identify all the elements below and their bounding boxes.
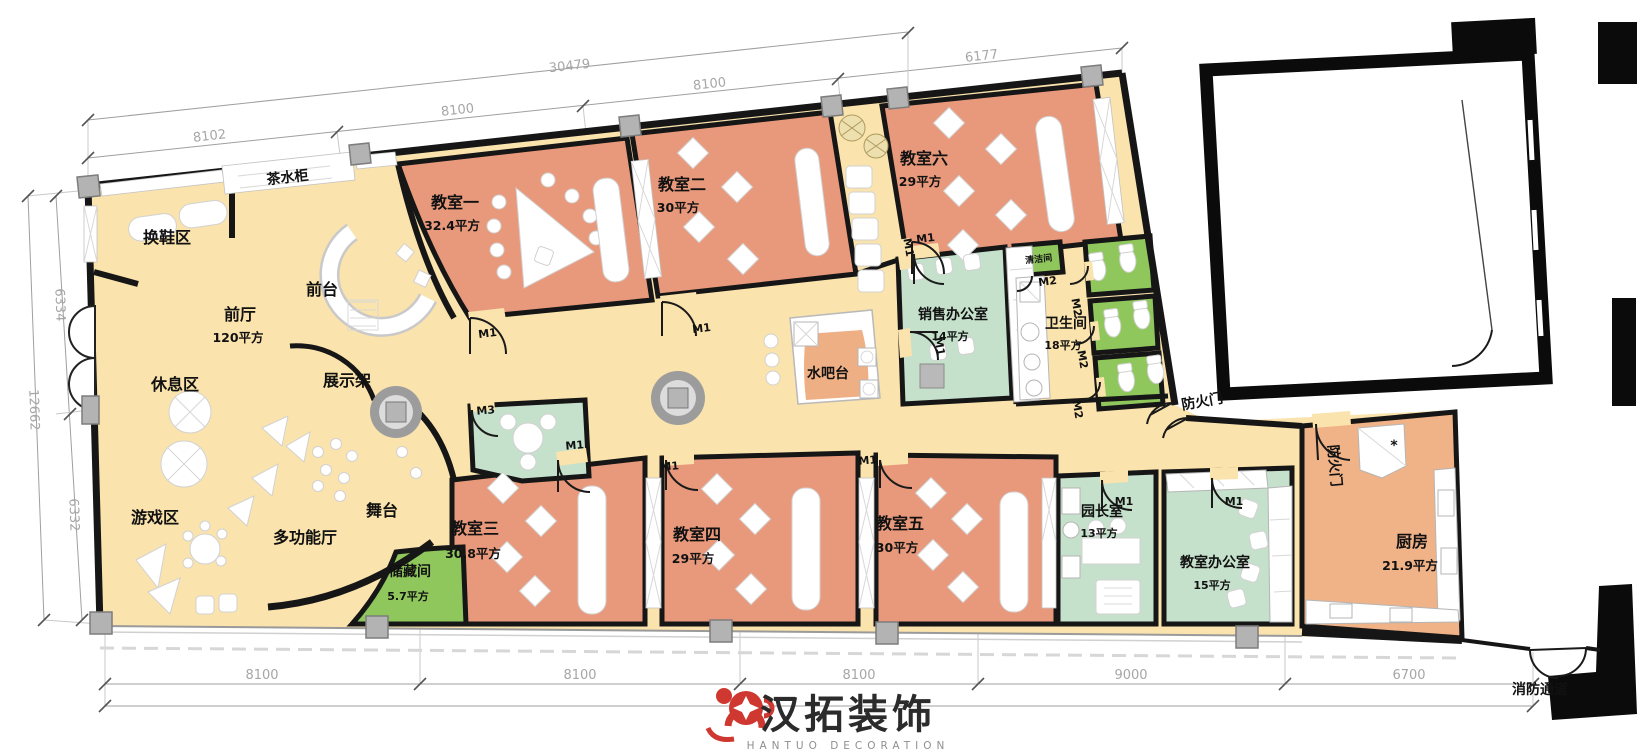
label-fire-door-1: 防火门 xyxy=(1180,390,1224,414)
label-teachers-office-area: 15平方 xyxy=(1193,578,1230,592)
label-display-shelf: 展示架 xyxy=(323,371,371,390)
label-stage: 舞台 xyxy=(366,501,398,520)
door-tag-m1: M1 xyxy=(565,438,585,453)
label-storage-area: 5.7平方 xyxy=(387,589,429,603)
logo-cn-text: 汉拓装饰 xyxy=(760,692,936,738)
label-kitchen: 厨房 xyxy=(1396,532,1428,551)
door-tag-m1: M1 xyxy=(1225,495,1244,508)
label-lounge: 休息区 xyxy=(150,375,199,394)
label-multifunction-hall: 多功能厅 xyxy=(273,528,337,547)
label-classroom-1-area: 32.4平方 xyxy=(424,218,480,233)
dim-bottom-5: 6700 xyxy=(1392,668,1425,683)
dim-bottom-2: 8100 xyxy=(563,668,596,683)
label-classroom-6: 教室六 xyxy=(900,149,948,168)
label-kitchen-area: 21.9平方 xyxy=(1382,558,1438,573)
label-shoe-area: 换鞋区 xyxy=(143,228,191,247)
neighbor-wall-fragment-bottomright xyxy=(1548,584,1637,720)
label-bathroom-area: 18平方 xyxy=(1044,338,1081,352)
dim-top-1: 8102 xyxy=(192,127,227,146)
label-classroom-4: 教室四 xyxy=(673,525,721,544)
dim-top-overall: 30479 xyxy=(548,57,591,76)
dim-left-2: 6332 xyxy=(65,498,81,532)
floor-plan-canvas: 8102 8100 8100 6177 30479 6334 6332 1266… xyxy=(0,0,1637,754)
label-storage: 储藏间 xyxy=(388,563,431,580)
label-sales-office: 销售办公室 xyxy=(918,306,988,323)
neighbor-wall-fragment-right xyxy=(1612,298,1636,406)
label-bathroom: 卫生间 xyxy=(1045,315,1087,332)
dim-bottom-4: 9000 xyxy=(1114,668,1147,683)
label-front-hall-area: 120平方 xyxy=(212,330,263,345)
dim-bottom-1: 8100 xyxy=(245,668,278,683)
label-water-bar: 水吧台 xyxy=(807,365,849,382)
dim-left-1: 6334 xyxy=(51,288,67,322)
neighbor-wall-fragment-top xyxy=(1451,18,1537,58)
neighbor-empty-room xyxy=(1206,54,1546,394)
sidewalk-dashed-line xyxy=(100,648,1460,658)
door-tag-m2: M2 xyxy=(1038,274,1058,289)
label-principal-office-area: 13平方 xyxy=(1080,526,1117,540)
door-tag-m1: M1 xyxy=(858,453,878,468)
label-classroom-3: 教室三 xyxy=(451,519,499,538)
entrance-door-leaf xyxy=(69,306,95,358)
dim-top-4: 6177 xyxy=(964,47,999,66)
door-tag-m3: M3 xyxy=(476,403,496,418)
dim-left-overall: 12662 xyxy=(25,389,41,431)
door-tag-m1: M1 xyxy=(692,321,712,336)
round-column xyxy=(370,386,422,438)
fire-exit-doors xyxy=(1530,648,1586,678)
floor-plan-svg: 8102 8100 8100 6177 30479 6334 6332 1266… xyxy=(0,0,1637,754)
label-reception: 前台 xyxy=(306,280,338,299)
label-fridge-star: * xyxy=(1390,438,1398,454)
neighbor-wall-fragment-topright xyxy=(1598,22,1637,84)
dim-bottom-3: 8100 xyxy=(842,668,875,683)
logo-en-text: HANTUO DECORATION xyxy=(747,740,950,752)
label-classroom-2: 教室二 xyxy=(658,175,706,194)
door-tag-m1: M1 xyxy=(478,326,498,341)
label-classroom-4-area: 29平方 xyxy=(672,551,714,566)
label-classroom-2-area: 30平方 xyxy=(657,200,699,215)
round-column xyxy=(651,371,705,425)
label-fire-exit: 消防通道 xyxy=(1512,681,1568,698)
label-classroom-5-area: 30平方 xyxy=(876,540,918,555)
label-classroom-5: 教室五 xyxy=(876,514,924,533)
label-classroom-6-area: 29平方 xyxy=(899,174,941,189)
label-front-hall: 前厅 xyxy=(224,305,256,324)
label-teachers-office: 教室办公室 xyxy=(1180,554,1250,571)
room-classroom-3 xyxy=(452,458,645,624)
door-tag-m1: M1 xyxy=(1115,495,1134,508)
label-play-area: 游戏区 xyxy=(131,508,179,527)
door-tag-m1: M1 xyxy=(916,231,936,246)
label-classroom-1: 教室一 xyxy=(431,193,479,212)
door-tag-m1: M1 xyxy=(660,459,680,474)
brand-logo: 汉拓装饰 HANTUO DECORATION xyxy=(708,688,949,752)
label-classroom-3-area: 30.8平方 xyxy=(445,546,501,561)
water-bar xyxy=(790,310,880,404)
